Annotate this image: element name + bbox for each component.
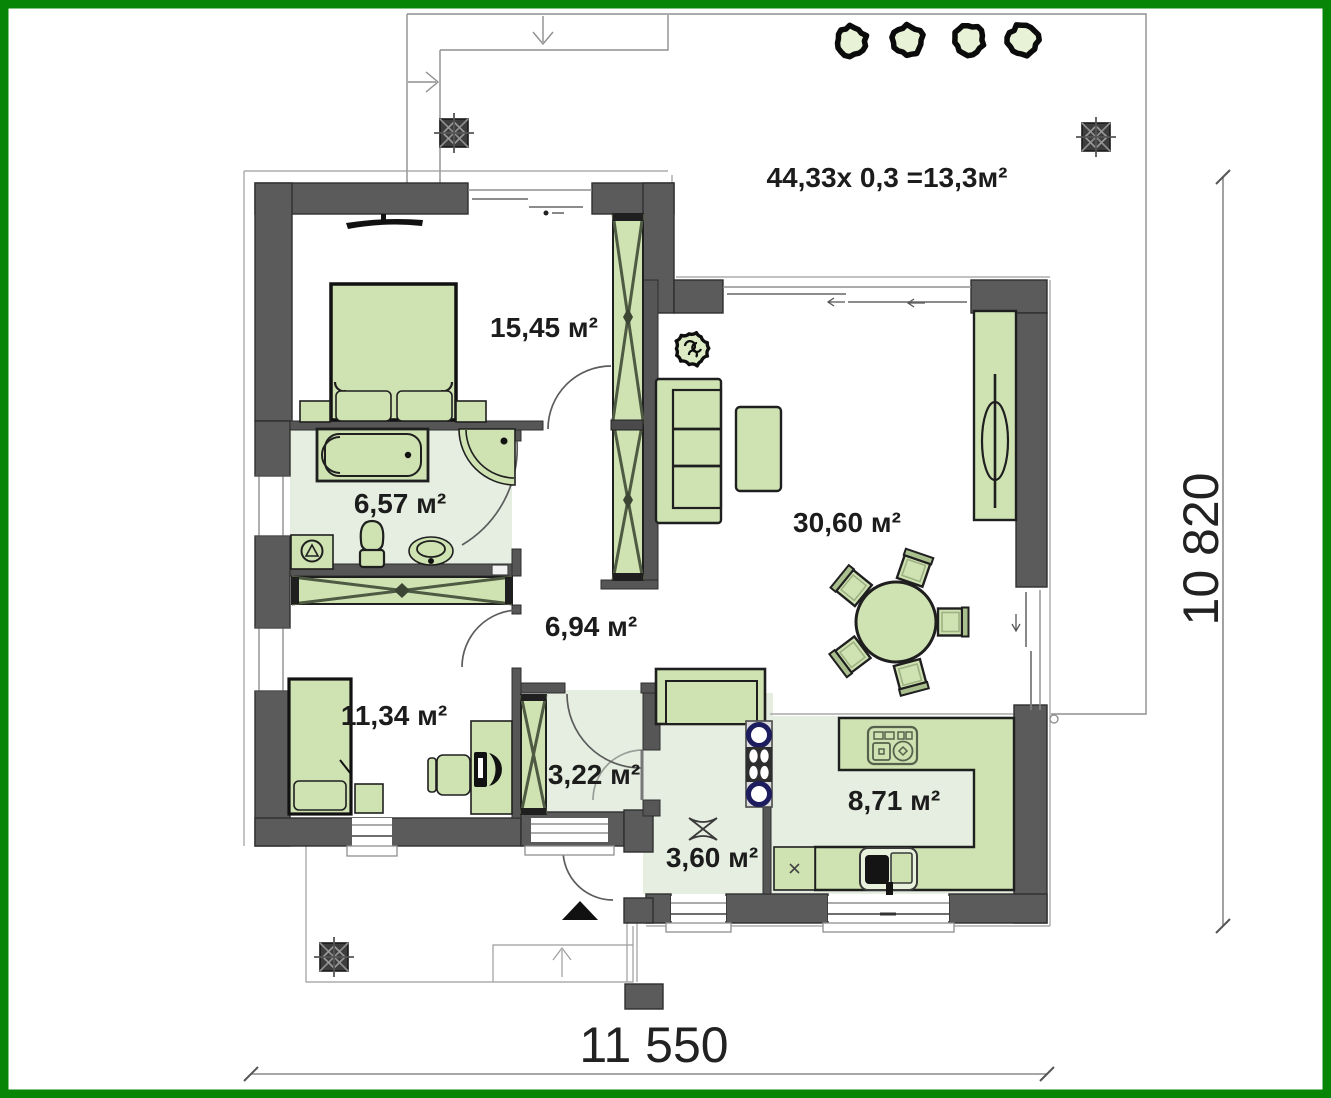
svg-text:44,33x 0,3 =13,3м²: 44,33x 0,3 =13,3м²: [766, 162, 1007, 193]
svg-text:6,94 м²: 6,94 м²: [545, 611, 637, 642]
svg-text:11 550: 11 550: [579, 1017, 728, 1073]
svg-text:10 820: 10 820: [1173, 473, 1229, 626]
svg-text:30,60 м²: 30,60 м²: [793, 507, 901, 538]
svg-text:3,22 м²: 3,22 м²: [548, 759, 640, 790]
svg-text:8,71 м²: 8,71 м²: [848, 785, 940, 816]
svg-text:6,57 м²: 6,57 м²: [354, 488, 446, 519]
svg-text:11,34 м²: 11,34 м²: [341, 700, 447, 731]
svg-text:3,60 м²: 3,60 м²: [666, 842, 758, 873]
svg-text:15,45 м²: 15,45 м²: [490, 312, 598, 343]
